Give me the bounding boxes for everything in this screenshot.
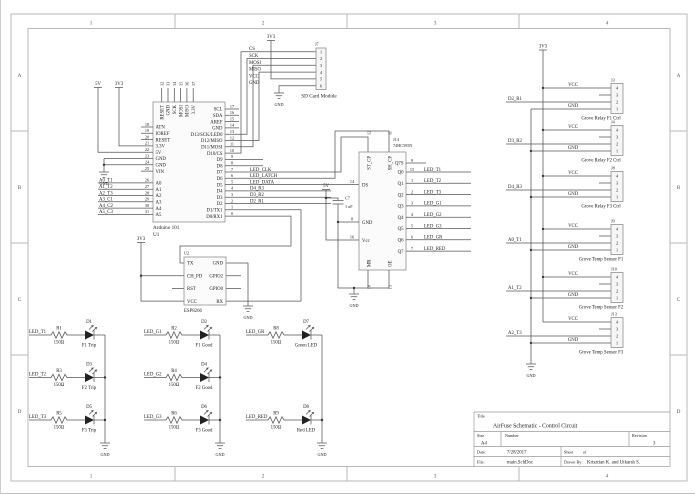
pin-name: RESET [156, 138, 171, 143]
net-label: A2_T3 [508, 331, 522, 336]
junction-dot [219, 419, 221, 421]
resistor-value: 150Ω [169, 341, 180, 346]
resistor-symbols [49, 332, 69, 423]
led-function-label: F2 Trip [82, 386, 97, 391]
resistor-ref: R1 [56, 327, 62, 332]
gnd-label: GND [568, 293, 579, 298]
pin-name: D3 [217, 196, 223, 201]
pin-name: SCK [173, 104, 178, 114]
grove-connector-j4: J4 VCC D3_R2 GND 4 3 2 1 Grove Relay F2 … [506, 120, 623, 164]
net-label: D3_R2 [508, 139, 522, 144]
pin-number: 28 [145, 190, 149, 195]
pin-name: A2 [156, 194, 162, 199]
pin-number: 9 [231, 154, 233, 159]
gnd-wires [104, 159, 141, 173]
junction-dot [337, 221, 339, 223]
frame-row-label: C [677, 297, 681, 303]
pin-name: GPIO2 [209, 274, 223, 279]
pin-number: 3 [411, 201, 413, 206]
frame-col-label: 1 [90, 21, 93, 27]
drawn-by-value: Krisztian K. and Utkarsh S. [587, 461, 640, 466]
junction-dot [321, 419, 323, 421]
frame-col-label: 3 [434, 474, 437, 480]
frame-row-label: A [18, 73, 22, 79]
pin-number: 4 [411, 212, 414, 217]
pin-number: 32 [159, 82, 164, 86]
pin-name: DS [362, 183, 368, 188]
resistor-ref: R5 [56, 412, 62, 417]
gnd-symbol [526, 364, 536, 369]
gnd-symbol [274, 93, 284, 98]
pin-name: GND [167, 104, 172, 115]
pin-number: 2 [616, 334, 618, 339]
pin-number: 1 [411, 178, 413, 183]
pin-number: 3 [616, 135, 618, 140]
pin-number: 3 [616, 234, 618, 239]
capacitor-ref: C7 [345, 196, 350, 201]
resistor-ref: R8 [273, 327, 279, 332]
component-ref: J8 [611, 166, 615, 171]
pin-name: SDA [213, 114, 223, 119]
frame-col-label: 1 [90, 474, 93, 480]
pin-number: 1 [616, 149, 618, 154]
arduino-top-pin-stubs [162, 88, 194, 102]
junction-dot [353, 287, 355, 289]
led-function-label: F3 Good [196, 429, 214, 434]
power-label-5v: 5V [323, 184, 329, 189]
frame-col-label: 4 [606, 474, 609, 480]
pin-number: 1 [320, 49, 322, 54]
pin-number: 21 [145, 141, 149, 146]
frame-row-label: C [18, 297, 22, 303]
pin-name: A1 [156, 188, 162, 193]
grove-connector-j8: J8 VCC D4_R3 GND 4 3 2 1 Grove Relay F3 … [506, 166, 623, 210]
grove-power-rails [531, 50, 547, 364]
pin-name: 3.3V [156, 145, 166, 150]
gnd-label: GND [99, 181, 108, 186]
gnd-symbol [100, 443, 110, 448]
resistor-ref: R9 [273, 412, 279, 417]
title-label: Title [477, 414, 485, 419]
pin-number: 2 [411, 189, 413, 194]
pin-number: 4 [231, 186, 234, 191]
net-label: LED_LATCH [250, 174, 278, 179]
pin-number: 16 [230, 110, 234, 115]
pin-number: 37 [191, 82, 196, 86]
component-ref: U2 [184, 251, 189, 256]
net-label: LED_G2 [144, 373, 162, 378]
gnd-label: GND [568, 245, 579, 250]
pin-name: D0/RX1 [206, 215, 223, 220]
pin-name: Q7S [395, 162, 404, 167]
pin-number: 10 [366, 285, 371, 289]
gnd-label: GND [349, 303, 358, 308]
net-label: A3_C1 [99, 198, 113, 203]
resistor-symbols [266, 332, 286, 423]
pin-number: 5 [320, 77, 322, 82]
pin-name: D5 [217, 183, 223, 188]
pin-number: 1 [616, 195, 618, 200]
gnd-label: GND [100, 452, 109, 457]
gnd-symbol [349, 294, 359, 299]
power-label-3v3: 3V3 [115, 82, 124, 87]
pin-name: D10/CS [207, 152, 223, 157]
pin-number: 11 [230, 142, 234, 147]
vcc-label: VCC [568, 83, 578, 88]
vcc-label: VCC [568, 317, 578, 322]
gnd-label: GND [243, 315, 252, 320]
resistor-ref: R4 [171, 369, 177, 374]
pin-name: Q7 [398, 250, 404, 255]
component-ref: J7 [315, 42, 319, 47]
net-label: LED_T1 [29, 330, 47, 335]
pin-number: 35 [178, 82, 183, 86]
pin-name: D12/MISO [201, 139, 223, 144]
pin-name: VCC [187, 300, 197, 305]
pin-number: 13 [230, 129, 234, 134]
title-block-lines [474, 412, 670, 467]
pin-number: 22 [145, 147, 149, 152]
pin-name: Q5 [398, 227, 404, 232]
pin-name: A0 [156, 182, 162, 187]
title-block: Title AirFuse Schematic - Control Circui… [474, 412, 670, 467]
frame-col-label: 2 [262, 21, 265, 27]
pin-number: 36 [185, 82, 190, 86]
resistor-value: 150Ω [169, 426, 180, 431]
gnd-symbol [317, 443, 327, 448]
led-wires [246, 335, 322, 443]
pin-number: 15 [230, 116, 234, 121]
resistor-value: 150Ω [54, 426, 65, 431]
schematic-sheet: 1 2 3 4 1 2 3 4 A B C D A B C D Title Ai… [0, 0, 695, 494]
pin-number: 3 [616, 93, 618, 98]
pin-number: 11 [387, 131, 392, 135]
pin-number: 12 [366, 131, 371, 135]
pin-name: GND [362, 221, 373, 226]
file-label: File: [477, 460, 485, 465]
component-ref: J3 [611, 78, 615, 83]
pin-name: AREF [210, 120, 223, 125]
net-label: LED_GR [424, 236, 443, 241]
pin-name: GND [212, 127, 223, 132]
sd-vcc-wire [267, 41, 316, 79]
vcc-label: VCC [568, 272, 578, 277]
net-label: LED_GR [246, 330, 265, 335]
5v-rail-wire [94, 88, 141, 153]
pin-number: 19 [145, 128, 149, 133]
power-label-5v: 5V [95, 82, 101, 87]
pin-name: D6 [217, 177, 223, 182]
resistor-value: 150Ω [54, 341, 65, 346]
date-value: 7/28/2017 [507, 451, 527, 456]
pin-number: 5 [231, 179, 233, 184]
pin-name: MISO [186, 104, 191, 117]
gnd-label: GND [317, 452, 326, 457]
power-label-3v3: 3V3 [539, 45, 548, 50]
pin-number: 29 [145, 197, 149, 202]
pin-name: VCC [249, 74, 259, 79]
pin-name: Q2 [398, 193, 404, 198]
frame-row-label: A [677, 73, 681, 79]
drawn-by-label: Drawn By: [564, 460, 583, 465]
net-label: D2_R1 [250, 199, 264, 204]
connector-name: Grove Temp Sensor F2 [579, 306, 624, 311]
sd-gnd-wire [279, 86, 316, 93]
component-ref: J13 [611, 312, 617, 317]
junction-dot [104, 419, 106, 421]
pin-number: 34 [172, 81, 177, 86]
gnd-label: GND [568, 146, 579, 151]
grove-connector-j10: J10 VCC A1_T2 GND 4 3 2 1 Grove Temp Sen… [506, 267, 624, 311]
pin-number: 9 [411, 158, 413, 163]
net-label: LED_G1 [144, 330, 162, 335]
led-indicators: GND LED_T1 R1 150Ω D1 F1 Trip LED_T2 R3 … [29, 320, 327, 457]
pin-name: SCK [249, 54, 259, 59]
pin-name: CS [249, 47, 255, 52]
pin-number: 25 [145, 166, 149, 171]
net-label: LED_G1 [424, 202, 442, 207]
gnd-symbol [243, 306, 253, 311]
junction-dot [325, 197, 327, 199]
led-function-label: F1 Trip [82, 344, 97, 349]
pin-number: 3 [616, 282, 618, 287]
component-name: ESP8266 [184, 309, 202, 314]
net-label: D4_R3 [508, 185, 522, 190]
connector-name: Grove Temp Sensor F1 [579, 258, 624, 263]
connector-name: Grove Relay F2 Ctrl [581, 159, 621, 164]
pin-name: CH_PD [187, 274, 203, 279]
pin-number: 7 [411, 246, 413, 251]
vcc-label: VCC [568, 125, 578, 130]
pin-name: GND [249, 81, 260, 86]
pin-name: SCL [214, 108, 223, 113]
pin-name: D4 [217, 190, 223, 195]
component-part: 74HC595N [393, 143, 412, 148]
gnd-label: GND [526, 373, 535, 378]
net-label: LED_CLK [250, 168, 272, 173]
net-label: LED_RED [246, 415, 268, 420]
pin-number: 1 [616, 341, 618, 346]
pin-name: Q3 [398, 205, 404, 210]
pin-number: 12 [230, 135, 234, 140]
pin-name: ST_CP [367, 156, 372, 170]
resistor-ref: R2 [171, 327, 177, 332]
net-label: LED_G2 [424, 213, 442, 218]
grove-connector-j13: J13 VCC A2_T3 GND 4 3 2 1 Grove Temp Sen… [506, 312, 624, 356]
frame-row-label: D [18, 409, 22, 415]
size-label: Size [477, 433, 484, 438]
sheet-label: Sheet [564, 450, 574, 455]
pin-name: MR [367, 259, 372, 267]
pin-number: 20 [145, 134, 149, 139]
pin-name: GND [156, 157, 167, 162]
sheet-of-label: of [583, 450, 587, 455]
connector-name: Grove Relay F1 Ctrl [581, 117, 621, 122]
pin-name: IOREF [156, 132, 170, 137]
pin-number: 2 [616, 142, 618, 147]
frame-row-label: B [18, 185, 22, 191]
net-label: A4_C2 [99, 204, 113, 209]
file-value: main.SchDoc [507, 461, 533, 466]
led-function-label: F1 Good [196, 344, 214, 349]
pin-name: A3 [156, 201, 162, 206]
pin-number: 7 [231, 167, 233, 172]
net-label: LED_DATA [250, 180, 275, 185]
pin-name: VIN [156, 170, 165, 175]
pin-number: 16 [350, 235, 354, 240]
net-label: LED_T2 [29, 373, 47, 378]
pin-number: 8 [351, 217, 353, 222]
frame-zone-ticks [11, 14, 687, 481]
gnd-label: GND [568, 192, 579, 197]
pin-number: 10 [230, 148, 234, 153]
power-label-3v3: 3V3 [137, 237, 146, 242]
frame-col-label: 4 [606, 21, 609, 27]
frame-col-label: 2 [262, 474, 265, 480]
3v3-rail-wire [115, 88, 141, 146]
pin-number: 3 [320, 63, 322, 68]
pin-number: 2 [320, 56, 322, 61]
pin-name: D7 [217, 171, 223, 176]
resistor-value: 150Ω [54, 383, 65, 388]
size-value: A4 [481, 442, 487, 447]
pin-name: 3.3V [192, 104, 197, 114]
resistor-value: 150Ω [271, 426, 282, 431]
number-label: Number [505, 433, 519, 438]
net-label: LED_G3 [144, 415, 162, 420]
led-function-label: Red LED [297, 429, 316, 434]
pin-number: 17 [230, 104, 234, 109]
pin-name: 5V [156, 151, 162, 156]
pin-number: 1 [616, 107, 618, 112]
pin-number: 3 [231, 192, 233, 197]
pin-name: D11/MOSI [201, 146, 223, 151]
pin-number: 2 [616, 188, 618, 193]
net-label: A5_C3 [99, 210, 113, 215]
component-ref: J9 [611, 219, 615, 224]
pin-number: 27 [145, 184, 149, 189]
connector-wires [506, 229, 611, 250]
pin-name: RST [187, 287, 196, 292]
pin-name: A4 [156, 207, 162, 212]
pin-name: A5 [156, 213, 162, 218]
pin-name: MISO [249, 68, 262, 73]
component-ref: J14 [393, 137, 400, 142]
led-function-label: Green LED [295, 344, 318, 349]
resistor-value: 150Ω [271, 341, 282, 346]
connector-wires [506, 322, 611, 343]
pin-name: D8 [217, 164, 223, 169]
pin-name: Q4 [398, 216, 404, 221]
pin-name: GND [213, 262, 224, 267]
pin-number: 2 [231, 198, 233, 203]
pin-number: 24 [145, 160, 150, 165]
pin-number: 31 [145, 209, 149, 214]
pin-number: 5 [411, 223, 413, 228]
gnd-label: GND [568, 338, 579, 343]
grove-connector-j3: J3 VCC D2_R1 GND 4 3 2 1 Grove Relay F1 … [506, 78, 623, 122]
pin-number: 23 [145, 153, 149, 158]
schematic-title: AirFuse Schematic - Control Circuit [493, 424, 578, 430]
pin-number: 18 [145, 122, 149, 127]
pin-name: D2 [217, 202, 223, 207]
net-label: D2_R1 [508, 97, 522, 102]
pin-name: Q1 [398, 182, 404, 187]
pin-name: Vcc [362, 239, 370, 244]
pin-number: 3 [616, 327, 618, 332]
sheet-frame: 1 2 3 4 1 2 3 4 A B C D A B C D [11, 14, 687, 481]
pin-number: 1 [616, 248, 618, 253]
pin-name: Q0 [398, 171, 404, 176]
vcc-label: VCC [568, 171, 578, 176]
pin-number: 30 [145, 203, 149, 208]
junction-dot [140, 275, 142, 277]
pin-name: MOSI [179, 105, 184, 117]
frame-row-label: B [677, 185, 681, 191]
pin-name: D13/SCK/LED0 [191, 133, 224, 138]
pin-number: 6 [320, 83, 322, 88]
revision-label: Revision [632, 433, 648, 438]
pin-number: 13 [387, 285, 392, 289]
net-label: LED_RED [424, 247, 446, 252]
pin-name: SH_CP [388, 156, 393, 171]
led-function-label: F3 Trip [82, 429, 97, 434]
net-label: A1_T2 [508, 286, 522, 291]
led-ref: D1 [86, 320, 92, 325]
net-label: LED_G3 [424, 224, 442, 229]
pin-number: 2 [616, 241, 618, 246]
pin-name: Q6 [398, 239, 404, 244]
pin-number: 14 [350, 179, 355, 184]
date-label: Date: [477, 450, 486, 455]
pin-name: D1/TX1 [207, 209, 224, 214]
net-label: D3_R2 [250, 193, 264, 198]
pin-name: GPIO0 [209, 287, 223, 292]
schematic-canvas: 1 2 3 4 1 2 3 4 A B C D A B C D Title Ai… [1, 0, 695, 494]
grove-connectors: 3V3 GND J3 VCC D2_R1 GND 4 3 2 1 Grove R… [506, 45, 624, 379]
pin-number: 26 [145, 178, 149, 183]
pin-name: GND [156, 164, 167, 169]
led-ref: D4 [201, 363, 207, 368]
connector-name: Grove Temp Sensor F3 [579, 351, 624, 356]
pin-number: 8 [231, 161, 233, 166]
frame-col-label: 3 [434, 21, 437, 27]
gnd-label: GND [568, 104, 579, 109]
net-label: LED_T3 [29, 415, 47, 420]
sd-card-module-j7: 3V3 GND J7 CS SCK MOSI MISO VCC GND 1 2 … [239, 35, 337, 166]
pin-number: 14 [230, 123, 235, 128]
arduino-u1: 32 33 34 35 36 37 RESET GND SCK MOSI MIS… [94, 81, 239, 238]
junction-dot [103, 164, 105, 166]
shift-register-j14: LED_CLK LED_LATCH LED_DATA D4_R3 D3_R2 D… [239, 131, 471, 308]
junction-dot [104, 376, 106, 378]
pin-number: 2 [616, 289, 618, 294]
connector-name: Grove Relay F3 Ctrl [581, 205, 621, 210]
component-ref: J10 [611, 267, 617, 272]
net-label: A2_T3 [99, 191, 113, 196]
pin-number: 2 [616, 100, 618, 105]
net-label: LED_T3 [424, 190, 442, 195]
gnd-symbol [99, 172, 109, 177]
pin-number: 3 [616, 181, 618, 186]
led-ref: D3 [86, 363, 92, 368]
component-name: Arduino 101 [153, 225, 180, 231]
led-ref: D2 [201, 320, 207, 325]
pin-name: RX [216, 300, 223, 305]
connector-wires [506, 277, 611, 298]
gnd-label: GND [274, 102, 283, 107]
net-label: LED_T2 [424, 179, 442, 184]
